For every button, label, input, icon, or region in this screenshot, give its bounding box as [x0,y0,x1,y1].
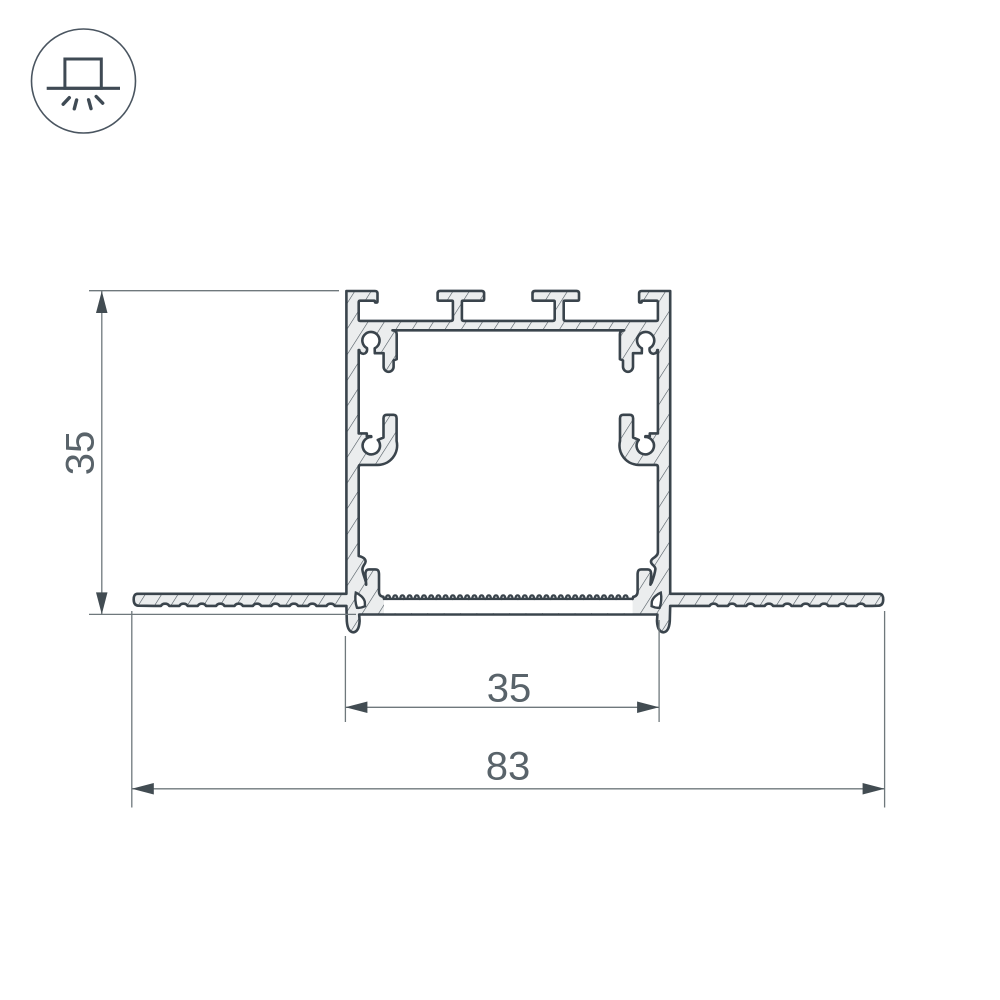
svg-text:35: 35 [487,667,532,711]
svg-text:83: 83 [486,745,531,789]
svg-text:35: 35 [59,431,103,476]
